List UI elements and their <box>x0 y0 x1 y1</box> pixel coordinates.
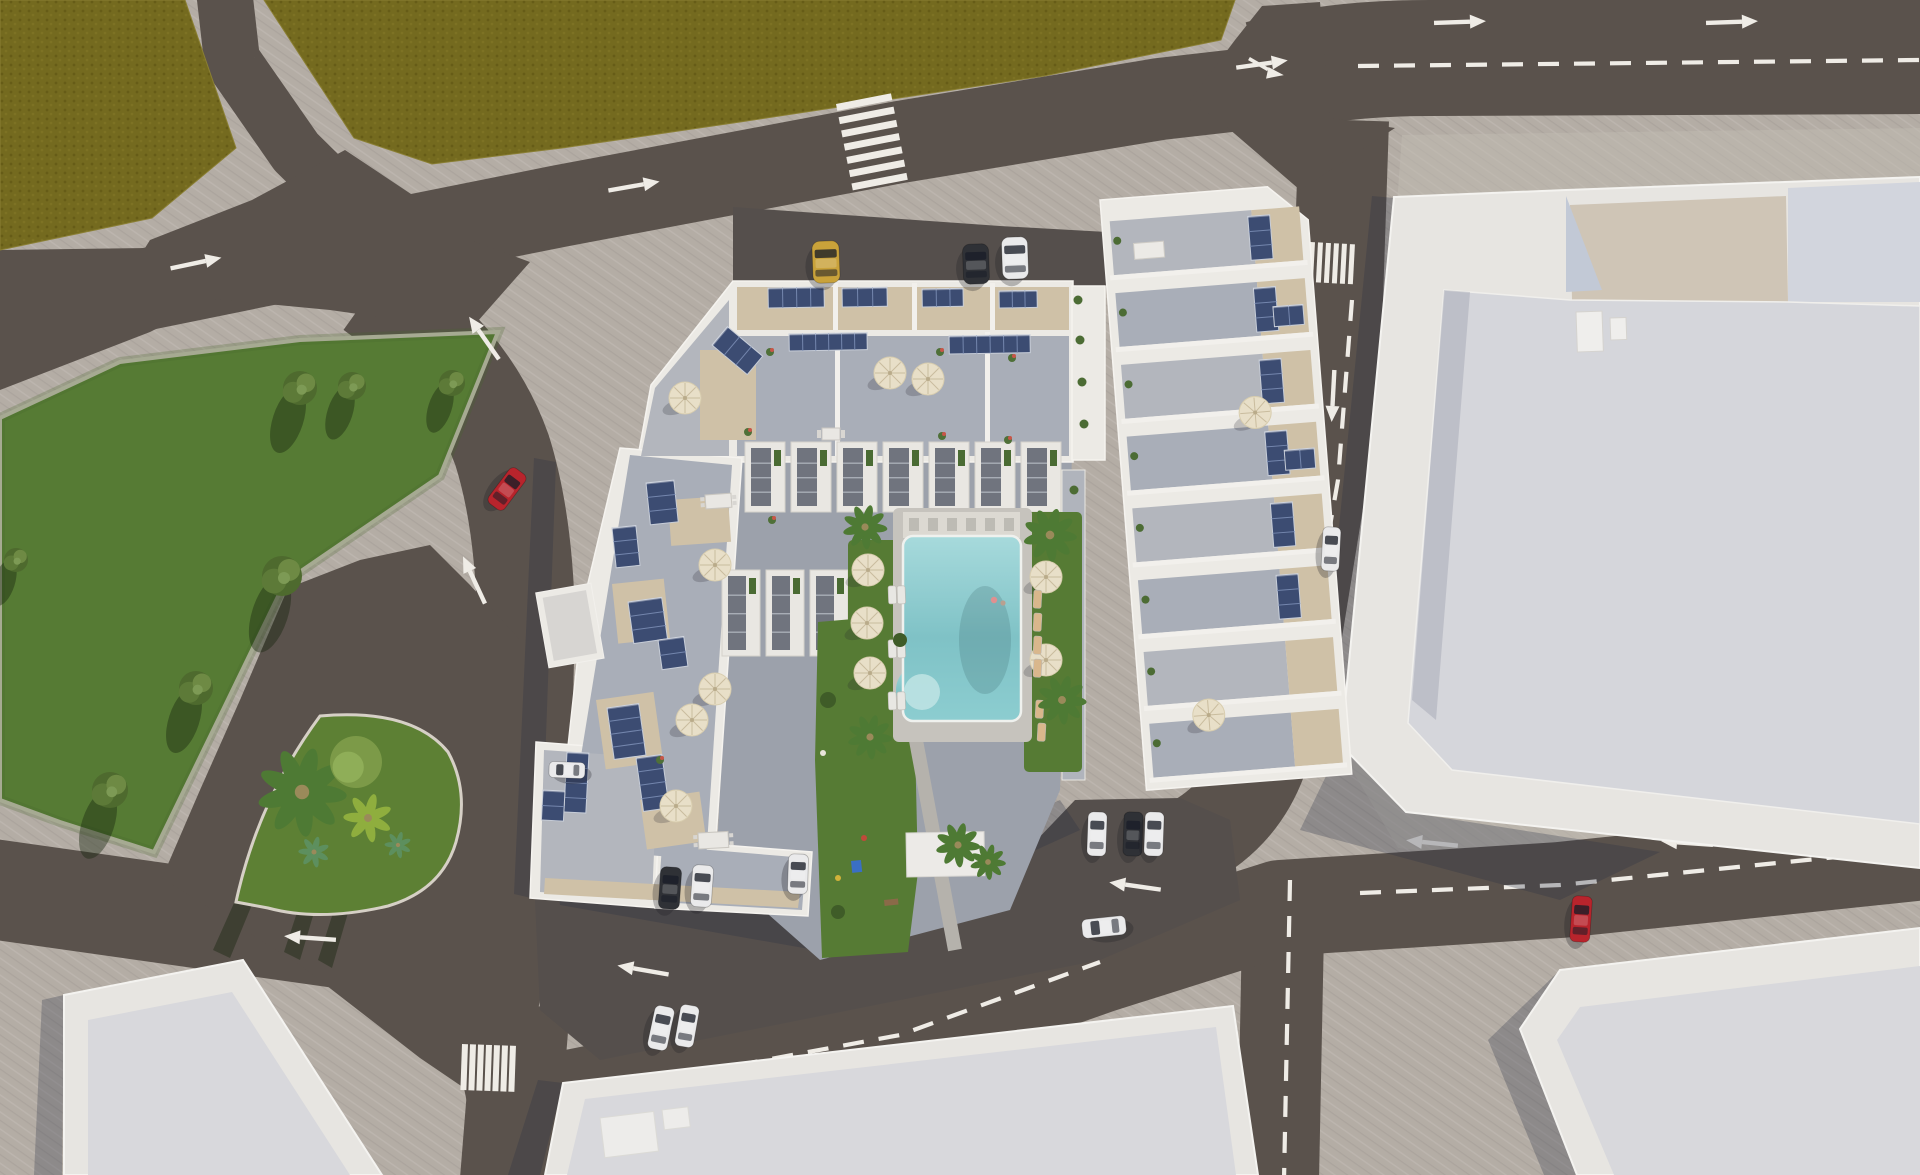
stair-cell <box>975 442 1015 512</box>
sun-lounger <box>1037 723 1046 741</box>
solar-panel-array <box>628 597 668 643</box>
building-right-large <box>1341 177 1920 868</box>
outdoor-table <box>700 493 737 509</box>
swimmer <box>991 597 997 603</box>
stair-cell <box>837 442 877 512</box>
sun-lounger <box>888 692 897 710</box>
sun-lounger <box>1033 659 1042 677</box>
outdoor-table <box>693 831 734 849</box>
sun-lounger <box>1033 590 1042 608</box>
person <box>820 750 826 756</box>
stair-cell <box>791 442 831 512</box>
aerial-site-render <box>0 0 1920 1175</box>
stair-cell <box>745 442 785 512</box>
playground-item <box>835 875 841 881</box>
swimmer <box>1000 600 1005 605</box>
sun-lounger <box>897 586 906 604</box>
solar-panel-array <box>607 704 646 760</box>
solar-panel-array <box>999 290 1037 308</box>
solar-panel-array <box>768 287 824 308</box>
solar-panel-array <box>646 480 678 525</box>
playground-item <box>861 835 867 841</box>
stair-cell <box>883 442 923 512</box>
solar-panel-array <box>1276 574 1301 620</box>
solar-panel-array <box>789 333 867 351</box>
solar-panel-array <box>541 790 565 821</box>
solar-panel-array <box>1259 358 1284 404</box>
wing-east-connector <box>1072 286 1105 460</box>
site-plan-svg <box>0 0 1920 1175</box>
stair-cell <box>766 570 804 656</box>
sun-lounger <box>1033 636 1042 654</box>
sun-lounger <box>897 692 906 710</box>
playground-item <box>851 860 862 873</box>
solar-panel-array <box>842 287 887 307</box>
solar-panel-array <box>1270 502 1295 548</box>
solar-panel-array <box>1248 215 1273 261</box>
solar-panel-array <box>922 288 963 307</box>
solar-panel-array <box>658 636 688 669</box>
stair-cell <box>929 442 969 512</box>
swimming-pool <box>893 508 1032 742</box>
solar-panel-array <box>1273 304 1304 326</box>
sun-lounger <box>888 586 897 604</box>
stair-cell <box>1021 442 1061 512</box>
solar-panel-array <box>949 335 1030 354</box>
stair-cell <box>722 570 760 656</box>
solar-panel-array <box>1284 448 1315 470</box>
palm-tree <box>330 736 382 788</box>
solar-panel-array <box>612 525 640 567</box>
sun-lounger <box>1033 613 1042 631</box>
